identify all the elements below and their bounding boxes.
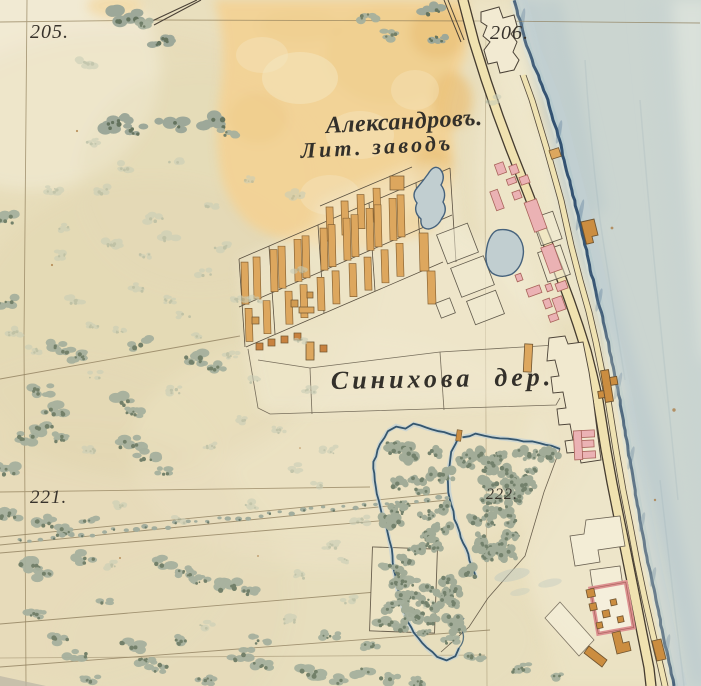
svg-text:221.: 221. — [30, 487, 67, 508]
svg-text:222.: 222. — [486, 486, 518, 503]
svg-text:206.: 206. — [490, 22, 529, 44]
svg-text:Синихова дер.: Синихова дер. — [331, 362, 555, 395]
svg-text:205.: 205. — [30, 21, 69, 43]
